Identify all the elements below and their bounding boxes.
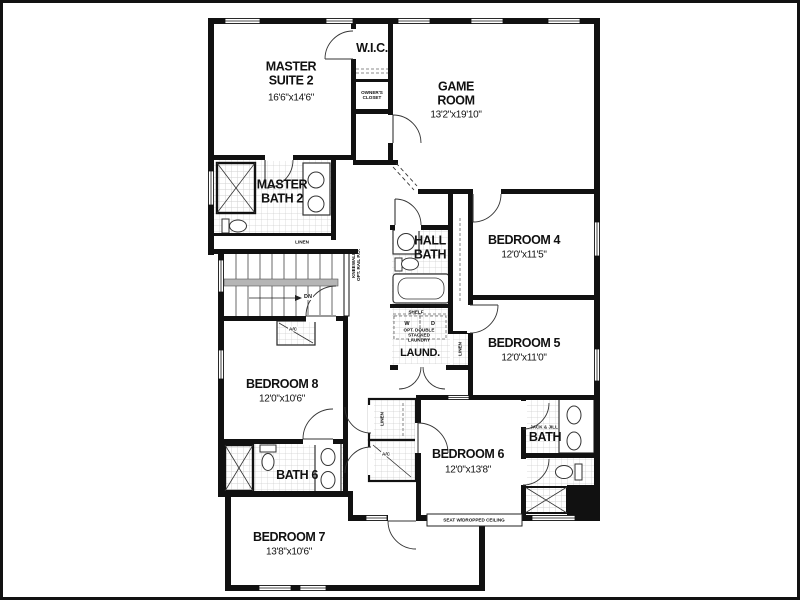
stairs-note-line2: OPT. RAIL P.O. bbox=[356, 249, 361, 281]
mid-closets bbox=[369, 399, 416, 481]
room-label-hall-bath: HALL BATH bbox=[410, 234, 450, 262]
shower-bath-6 bbox=[225, 445, 253, 491]
closet-label-linen-1: LINEN bbox=[295, 239, 309, 244]
ac-closet-bedroom8 bbox=[277, 321, 315, 345]
vanity-bath-6 bbox=[315, 443, 341, 493]
room-dims-bedroom-6: 12'0"x13'8" bbox=[445, 465, 491, 476]
laundry-opt-note: OPT. DOUBLE STACKED LAUNDRY bbox=[400, 327, 438, 342]
room-label-bedroom-5: BEDROOM 5 bbox=[488, 337, 560, 351]
vanity-jack-jill bbox=[559, 399, 594, 453]
toilet-jack-jill bbox=[556, 464, 583, 480]
room-label-master-suite-2: MASTER SUITE 2 bbox=[256, 60, 326, 88]
closet-label-linen-2: LINEN bbox=[457, 342, 462, 356]
bathtub-hall-bath bbox=[393, 274, 449, 303]
room-label-wic: W.I.C. bbox=[356, 42, 388, 56]
room-dims-bedroom-5: 12'0"x11'0" bbox=[501, 353, 546, 364]
room-label-jack-jill-small: JACK & JILL bbox=[530, 424, 558, 429]
closet-label-ac-1: A/C bbox=[288, 326, 298, 331]
room-dims-bedroom-7: 13'8"x10'6" bbox=[266, 547, 312, 558]
stairs-dn-label: DN bbox=[303, 294, 313, 300]
room-dims-bedroom-4: 12'0"x11'5" bbox=[501, 250, 546, 261]
stairs-drawing bbox=[224, 252, 349, 316]
wall-mass bbox=[567, 485, 594, 515]
room-dims-master-suite-2: 16'6"x14'6" bbox=[268, 93, 314, 104]
room-label-game-room: GAME ROOM bbox=[431, 80, 481, 108]
room-label-master-bath-2: MASTER BATH 2 bbox=[247, 178, 317, 206]
laundry-dryer-label: D bbox=[431, 321, 435, 327]
room-label-bedroom-8: BEDROOM 8 bbox=[246, 378, 318, 392]
room-dims-bedroom-8: 12'0"x10'6" bbox=[259, 394, 305, 405]
shower-jack-jill bbox=[525, 487, 567, 513]
room-label-bath-6: BATH 6 bbox=[276, 469, 318, 483]
room-label-bedroom-6: BEDROOM 6 bbox=[432, 448, 504, 462]
bedroom-6-seat-note: SEAT W/DROPPED CEILING bbox=[443, 517, 504, 522]
room-label-jack-jill-bath: BATH bbox=[529, 431, 561, 445]
toilet-master-bath bbox=[222, 219, 247, 233]
room-label-owners-closet: OWNER'S CLOSET bbox=[355, 90, 389, 100]
closet-label-ac-2: A/C bbox=[381, 451, 391, 456]
laundry-shelf-label: SHELF bbox=[408, 309, 423, 314]
stairs-note: KNEEWALL OPT. RAIL P.O. bbox=[351, 249, 361, 281]
room-label-bedroom-4: BEDROOM 4 bbox=[488, 234, 560, 248]
room-dims-game-room: 13'2"x19'10" bbox=[430, 110, 481, 121]
laundry-washer-label: W bbox=[404, 321, 409, 327]
room-label-bedroom-7: BEDROOM 7 bbox=[253, 531, 325, 545]
floor-plan-page: MASTER SUITE 2 16'6"x14'6" W.I.C. OWNER'… bbox=[0, 0, 800, 600]
closet-label-linen-3: LINEN bbox=[379, 412, 384, 426]
floor-plan-drawing bbox=[3, 3, 800, 600]
room-label-laundry: LAUND. bbox=[400, 347, 440, 359]
